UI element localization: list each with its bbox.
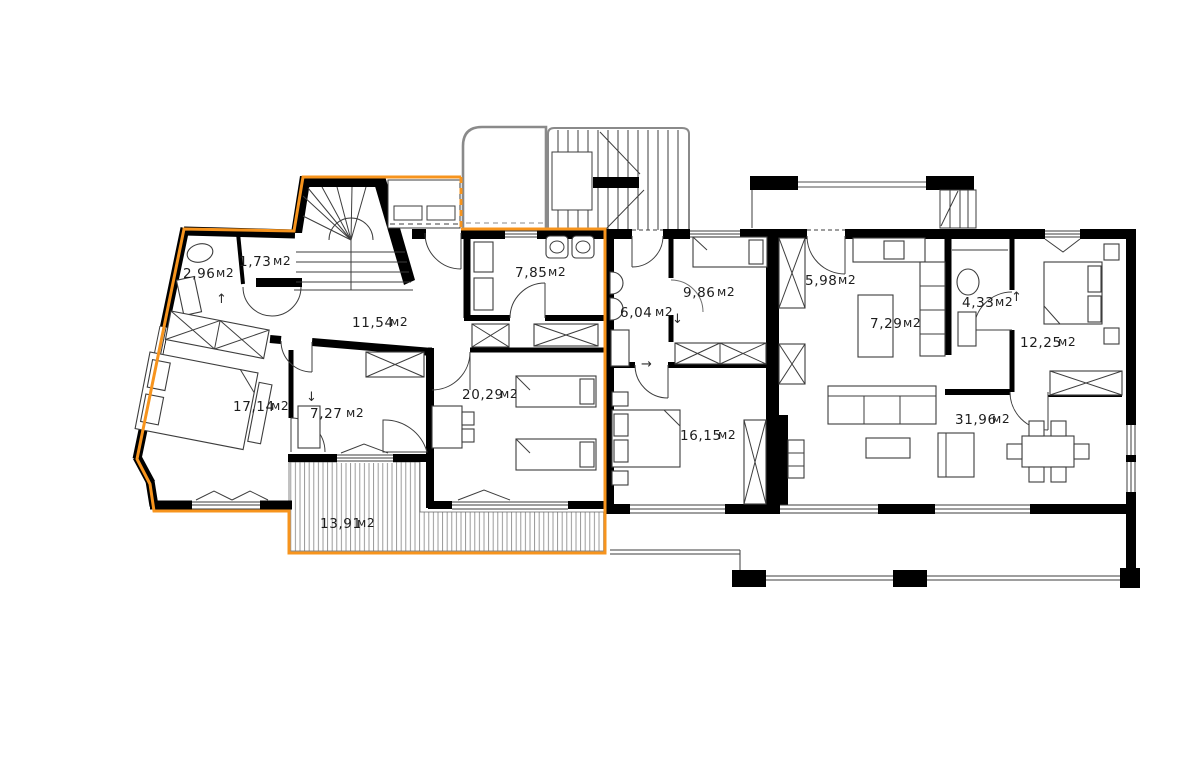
room-area-terrace: 13,91 [320,516,362,532]
entrance-canopy [463,127,546,229]
room-area-hall-right: 5,98 [805,273,837,289]
room-area-bathroom-small: 7,27 [310,406,342,422]
room-unit-bedroom-left: м2 [271,399,289,413]
room-unit-bathroom-left: м2 [548,265,566,279]
room-unit-bathroom-mid: м2 [655,305,673,319]
wardrobes-hall-right [779,238,805,384]
bed-single-mid [693,237,767,267]
arrow-down-icon: ↓ [306,390,317,405]
room-area-living-room: 31,96 [955,412,997,428]
arrow-up-icon: ↑ [1011,290,1022,305]
room-unit-hallway: м2 [390,315,408,329]
wardrobe-mid-band [675,343,766,364]
room-unit-wc: м2 [216,266,234,280]
kitchen-fixtures [853,238,945,357]
veranda-bottom-right [610,550,1140,588]
floor-plan-canvas: 2,96 м2 1,73 м2 7,85 м2 11,54 м2 17,14 м… [0,0,1200,773]
room-unit-bedroom-mid: м2 [718,428,736,442]
room-area-bathroom-mid: 6,04 [620,305,652,321]
room-area-hallway: 11,54 [352,315,394,331]
room-unit-kids-room: м2 [500,387,518,401]
room-area-bathroom-left: 7,85 [515,265,547,281]
room-unit-bedroom-right: м2 [1058,335,1076,349]
exterior-stair-top-right [940,190,976,228]
wardrobe-hallway [366,352,424,377]
arrow-down-icon: ↓ [672,312,683,327]
room-area-bathroom-right: 4,33 [962,295,994,311]
arrow-up-icon: ↑ [216,292,227,307]
wardrobe-bedroom-left [165,311,269,359]
room-unit-terrace: м2 [357,516,375,530]
floor-plan-svg: 2,96 м2 1,73 м2 7,85 м2 11,54 м2 17,14 м… [0,0,1200,773]
arrow-right-icon: → [641,357,652,372]
room-unit-kitchen: м2 [903,316,921,330]
room-unit-hall-right: м2 [838,273,856,287]
wardrobe-bedroom-right [1050,371,1122,395]
room-unit-hall-small: м2 [273,254,291,268]
wardrobes-band-left [472,324,598,347]
room-area-hall-small: 1,73 [239,254,271,270]
exterior-stair-top-center [548,128,689,231]
living-room-furniture [828,386,1089,482]
room-area-bedroom-mid: 16,15 [680,428,722,444]
bed-double-mid [612,392,680,485]
room-area-wc: 2,96 [183,266,215,282]
room-area-kids-room: 20,29 [462,387,504,403]
furniture-layer [135,236,1122,504]
room-area-bedroom-right: 12,25 [1020,335,1062,351]
room-area-bedroom-left: 17,14 [233,399,275,415]
room-unit-bathroom-small: м2 [346,406,364,420]
bed-double-right [1044,244,1119,344]
room-area-bedroom-mid-top: 9,86 [683,285,715,301]
room-area-kitchen: 7,29 [870,316,902,332]
room-unit-bedroom-mid-top: м2 [717,285,735,299]
room-unit-living-room: м2 [992,412,1010,426]
entry-landing [388,180,460,228]
